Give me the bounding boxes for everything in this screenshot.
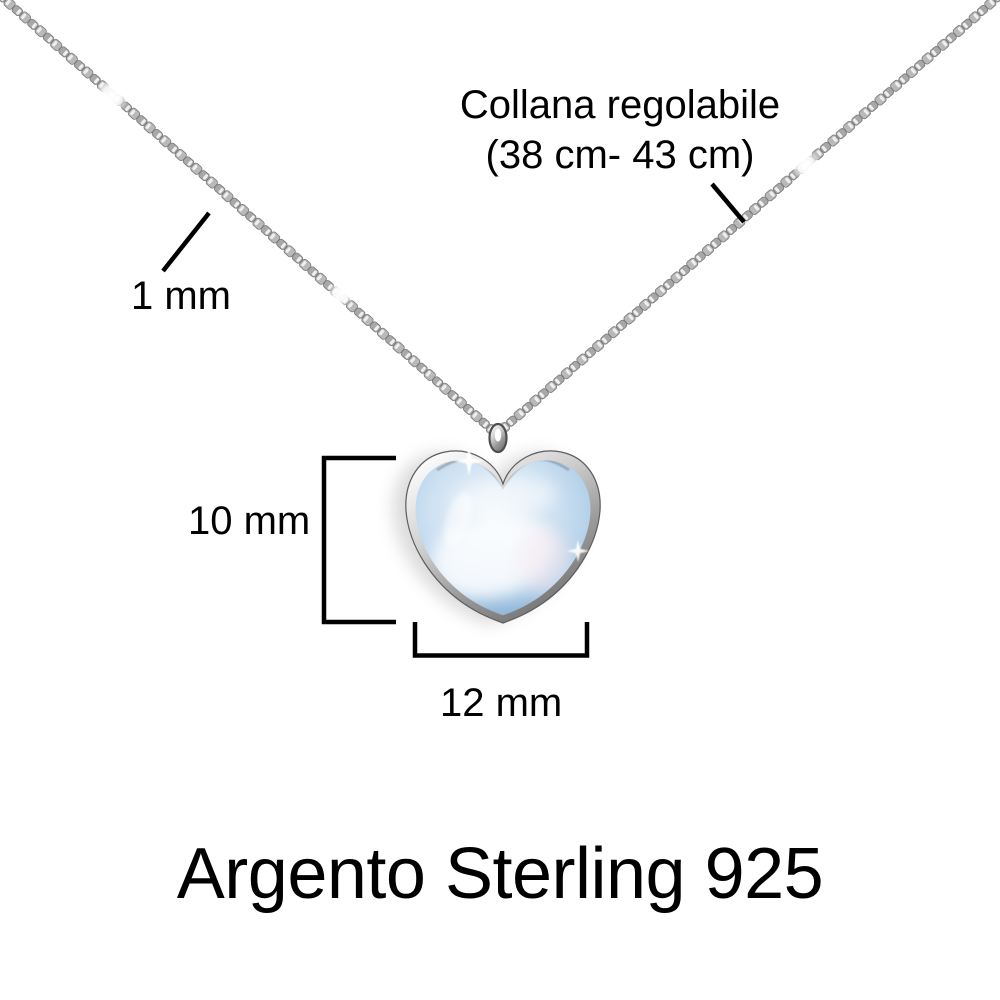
- chain-sparkle: [328, 281, 354, 307]
- heart-pendant: [393, 424, 600, 625]
- product-title: Argento Sterling 925: [0, 833, 1000, 915]
- chain-length-label-line2: (38 cm- 43 cm): [415, 130, 825, 180]
- pendant-height-label: 10 mm: [188, 499, 310, 544]
- necklace-chain-left: [0, 0, 499, 437]
- chain-thickness-callout-line: [163, 213, 209, 271]
- product-image-page: { "product": { "title": "Argento Sterlin…: [0, 0, 1000, 1000]
- necklace-chain-right: [497, 0, 1000, 435]
- chain-length-callout-line: [712, 184, 744, 222]
- pendant-width-label: 12 mm: [440, 681, 562, 726]
- chain-sparkle: [95, 79, 129, 113]
- height-dimension-bracket: [324, 458, 396, 622]
- width-dimension-bracket: [415, 622, 587, 656]
- chain-length-label-line1: Collana regolabile: [415, 80, 825, 130]
- pendant-bail: [490, 424, 507, 452]
- chain-thickness-label: 1 mm: [131, 274, 231, 319]
- chain-length-label: Collana regolabile (38 cm- 43 cm): [415, 80, 825, 180]
